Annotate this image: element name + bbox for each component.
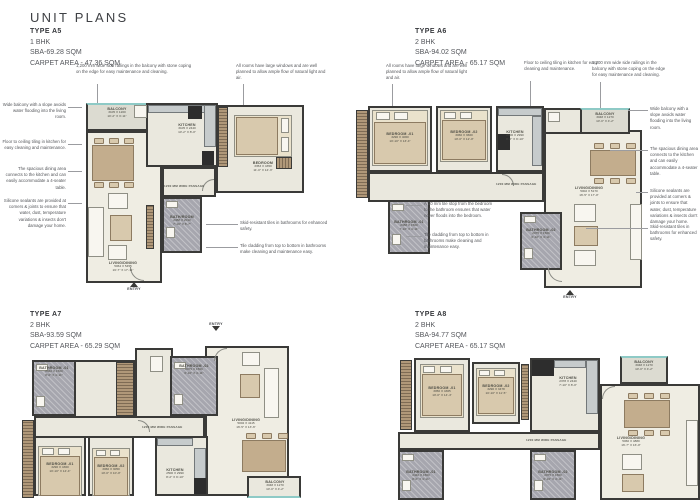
annotation-sealants-a6: Silicone sealants are provided at corner… — [650, 188, 698, 225]
toilet — [36, 396, 45, 407]
fridge — [202, 151, 214, 165]
room-label-kitchen: KITCHEN 3105 X 2440 10'-2" X 8'-0" — [164, 123, 210, 135]
stove — [194, 478, 206, 494]
annotation-windows-a6: All rooms have large windows and are wel… — [386, 63, 472, 82]
room-label-bathroom1: BATHROOM -01 2388 X 1500 7'-10" X 4'-11" — [389, 220, 429, 232]
unit-a5-bhk: 1 BHK — [30, 38, 120, 49]
unit-a8-sba: SBA-94.77 SQM — [415, 331, 505, 342]
annotation-cladding-a6: Tile cladding from top to bottom in bath… — [424, 232, 496, 251]
room-label-balcony: BALCONY 3048 X 1270 10'-0" X 4'-2" — [624, 360, 664, 372]
chair — [109, 182, 119, 188]
pillow — [281, 137, 289, 152]
leader-line — [628, 110, 648, 111]
unit-a7-type: TYPE A7 — [30, 310, 120, 321]
room-label-kitchen: KITCHEN 2378 X 2440 7'-10" X 8'-0" — [548, 376, 588, 388]
counter — [498, 108, 542, 116]
stove — [532, 360, 554, 376]
dining-table — [92, 145, 134, 181]
bath-sink — [534, 454, 546, 461]
annotation-cladding-a5: Tile cladding from top to bottom in bath… — [240, 243, 332, 255]
leader-line — [530, 81, 531, 106]
annotation-dining-a5: The spacious dining area connects to the… — [2, 166, 66, 191]
room-label-kitchen: KITCHEN 2500 X 2990 8'-2" X 9'-10" — [496, 130, 534, 142]
annotation-windows-a5: All rooms have large windows and are wel… — [236, 63, 330, 82]
pillow — [444, 112, 456, 119]
tv-unit — [146, 205, 154, 249]
chair — [262, 433, 272, 439]
room-label-bedroom2: BEDROOM -02 3060 X 3050 10'-0" X 10'-0" — [90, 464, 132, 476]
chair — [124, 182, 134, 188]
chair — [278, 433, 288, 439]
leader-line — [406, 205, 422, 206]
chair — [610, 143, 620, 149]
bath-sink — [392, 204, 404, 211]
passage — [398, 432, 600, 450]
room-label-bathroom1: BATHROOM -01 2440 X 1500 8'-0" X 4'-11" — [33, 366, 75, 378]
entry-marker: ENTRY — [122, 282, 146, 291]
armchair — [622, 454, 642, 470]
bath-sink — [166, 201, 178, 208]
dining-table — [624, 400, 670, 428]
leader-line — [586, 228, 648, 229]
chair — [626, 143, 636, 149]
armchair — [242, 352, 260, 366]
passage-label: 1200 MM WIDE PASSAGE — [526, 438, 566, 442]
dining-table — [590, 150, 636, 176]
leader-line — [406, 236, 422, 237]
chair — [94, 182, 104, 188]
unit-a6-sba: SBA-94.02 SQM — [415, 48, 505, 59]
chair — [109, 138, 119, 144]
chair — [660, 430, 670, 436]
floor-plan-a6: BEDROOM -01 3290 X 4060 10'-10" X 13'-4"… — [352, 100, 646, 306]
annotation-skid-a6: Skid-resistant tiles in bathrooms for en… — [650, 224, 698, 243]
unit-a5-type: TYPE A5 — [30, 27, 120, 38]
bath-sink — [402, 454, 414, 461]
unit-a8-header: TYPE A8 2 BHK SBA-94.77 SQM CARPET AREA … — [415, 310, 505, 352]
leader-line — [636, 192, 648, 193]
room-label-balcony: BALCONY 3048 X 1270 10'-0" X 4'-2" — [582, 112, 628, 124]
armchair — [574, 204, 596, 222]
chair — [594, 178, 604, 184]
entry-marker: ENTRY — [558, 290, 582, 299]
chair — [94, 138, 104, 144]
leader-line — [392, 84, 393, 106]
coffee-table — [622, 474, 644, 492]
toilet — [166, 227, 175, 238]
chair — [660, 393, 670, 399]
passage-label: 1200 MM WIDE PASSAGE — [496, 182, 536, 186]
chair — [594, 143, 604, 149]
leader-line — [610, 150, 648, 151]
sofa — [630, 204, 642, 260]
unit-a6-bhk: 2 BHK — [415, 38, 505, 49]
unit-a8-bhk: 2 BHK — [415, 321, 505, 332]
armchair — [108, 245, 127, 260]
toilet — [392, 234, 401, 245]
annotation-kitchen-tiling-a6: Floor to ceiling tiling in kitchen for e… — [524, 60, 598, 72]
foyer-fixture — [150, 356, 163, 372]
wardrobe — [356, 110, 368, 198]
room-label-bathroom2: BATHROOM -02 2075 X 1500 6'-10" X 4'-11" — [521, 228, 561, 240]
room-label-bedroom2: BEDROOM -02 3060 X 3660 10'-0" X 12'-0" — [441, 130, 487, 142]
annotation-balcony-slope-a6: Wide balcony with a slope avoids water f… — [650, 106, 698, 131]
leader-line — [206, 247, 238, 248]
room-label-bedroom2: BEDROOM -02 3290 X 3478 10'-10" X 11'-5" — [475, 384, 517, 396]
pillow — [42, 448, 54, 455]
counter — [554, 360, 586, 368]
unit-plans-page: UNIT PLANS TYPE A5 1 BHK SBA-69.28 SQM C… — [0, 0, 700, 500]
wardrobe — [218, 107, 228, 167]
leader-line — [97, 84, 98, 103]
pillow — [423, 366, 435, 373]
wardrobe — [521, 364, 529, 420]
room-label-living: LIVING/DINING 5064 X 5455 16'-7" X 17'-1… — [94, 261, 152, 273]
leader-line — [68, 144, 82, 145]
pillow — [440, 366, 452, 373]
chair — [628, 393, 638, 399]
room-label-balcony: BALCONY 3105 X 1200 10'-2" X 3'-11" — [88, 107, 146, 119]
passage — [368, 172, 544, 202]
room-label-living: LIVING/DINING 5002 X 4115 16'-5" X 13'-6… — [218, 418, 274, 430]
room-label-bathroom2: BATHROOM -02 2075 X 1500 6'-10" X 4'-11" — [172, 364, 216, 376]
unit-a5-sba: SBA-69.28 SQM — [30, 48, 120, 59]
passage-label: 1200 MM WIDE PASSAGE — [142, 425, 182, 429]
armchair — [108, 193, 128, 209]
passage-label: 1200 MM WIDE PASSAGE — [164, 184, 204, 188]
room-label-bathroom1: BATHROOM -01 2440 X 1500 8'-0" X 4'-11" — [400, 470, 442, 482]
bath-sink — [524, 216, 536, 223]
room-label-kitchen: KITCHEN 2500 X 2990 8'-2" X 9'-10" — [156, 468, 194, 480]
leader-line — [243, 84, 244, 105]
pillow — [96, 450, 106, 456]
pillow — [460, 112, 472, 119]
annotation-railing-a5: 1,200 mm wide side railings in the balco… — [76, 63, 192, 75]
room-label-bedroom: BEDROOM 3353 X 4350 11'-0" X 14'-3" — [236, 161, 290, 173]
pillow — [110, 450, 120, 456]
bed-blanket — [236, 117, 278, 155]
coffee-table — [574, 226, 598, 246]
leader-line — [206, 224, 238, 225]
unit-a8-type: TYPE A8 — [415, 310, 505, 321]
dining-table — [242, 440, 286, 472]
sofa — [88, 207, 104, 257]
sofa — [686, 420, 698, 486]
sofa — [264, 368, 279, 418]
chair — [626, 178, 636, 184]
room-label-bedroom1: BEDROOM -01 3290 X 4060 10'-10" X 13'-4" — [376, 132, 424, 144]
room-label-living: LIVING/DINING 5060 X 4880 16'-7" X 16'-0… — [604, 436, 658, 448]
leader-line — [68, 107, 82, 108]
stove — [188, 106, 202, 119]
room-label-bathroom2: BATHROOM -02 2075 X 1500 6'-10" X 4'-11" — [532, 470, 574, 482]
unit-a6-type: TYPE A6 — [415, 27, 505, 38]
entry-marker: ENTRY — [204, 322, 228, 331]
page-title: UNIT PLANS — [30, 10, 128, 25]
room-label-bedroom1: BEDROOM -01 3050 X 4365 10'-0" X 14'-4" — [418, 386, 466, 398]
annotation-dining-a6: The spacious dining area connects to the… — [650, 146, 698, 177]
chair — [124, 138, 134, 144]
room-label-balcony: BALCONY 3048 X 1270 10'-0" X 4'-2" — [256, 480, 294, 492]
bed-blanket — [94, 457, 128, 496]
room-label-bathroom: BATH/ROOM 2388 X 2010 7'-10" X 6'-7" — [163, 215, 201, 227]
chair — [246, 433, 256, 439]
entry-arrow-icon — [212, 326, 220, 331]
annotation-balcony-slope-a5: Wide balcony with a slope avoids water f… — [2, 102, 66, 121]
annotation-railing-a6: 1,200 mm wide side railings in the balco… — [592, 60, 668, 79]
pillow — [58, 448, 70, 455]
room-label-living: LIVING/DINING 5002 X 5170 16'-5" X 17'-0… — [562, 186, 616, 198]
annotation-kitchen-tiling-a5: Floor to ceiling tiling in kitchen for e… — [2, 139, 66, 151]
annotation-skid-a5: Skid-resistant tiles in bathrooms for en… — [240, 220, 332, 232]
coffee-table — [240, 374, 260, 398]
pillow — [479, 370, 490, 376]
annotation-sealants-a5: Silicone sealants are provided at corner… — [2, 198, 66, 229]
floor-plan-a5: BALCONY 3105 X 1200 10'-2" X 3'-11" KITC… — [78, 93, 310, 299]
floor-plan-a7: BATHROOM -01 2440 X 1500 8'-0" X 4'-11" … — [18, 320, 336, 500]
coffee-table — [110, 215, 132, 241]
toilet — [524, 248, 533, 259]
chair — [610, 178, 620, 184]
toilet — [174, 394, 183, 405]
armchair — [574, 250, 596, 266]
utility-fixture — [548, 112, 560, 122]
wardrobe — [116, 362, 134, 416]
leader-line — [68, 171, 82, 172]
leader-line — [600, 82, 601, 108]
floor-plan-a8: BEDROOM -01 3050 X 4365 10'-0" X 14'-4" … — [392, 348, 700, 500]
wardrobe — [22, 420, 34, 498]
wardrobe — [400, 360, 412, 430]
pillow — [494, 370, 505, 376]
counter — [157, 438, 193, 446]
annotation-tilestop-a6: A 10 mm tile stop from the bedroom to th… — [424, 201, 496, 220]
pillow — [394, 112, 408, 120]
leader-line — [68, 203, 82, 204]
pillow — [281, 118, 289, 133]
pillow — [376, 112, 390, 120]
room-label-bedroom1: BEDROOM -01 3290 X 4360 10'-10" X 14'-4" — [37, 462, 83, 474]
chair — [644, 393, 654, 399]
